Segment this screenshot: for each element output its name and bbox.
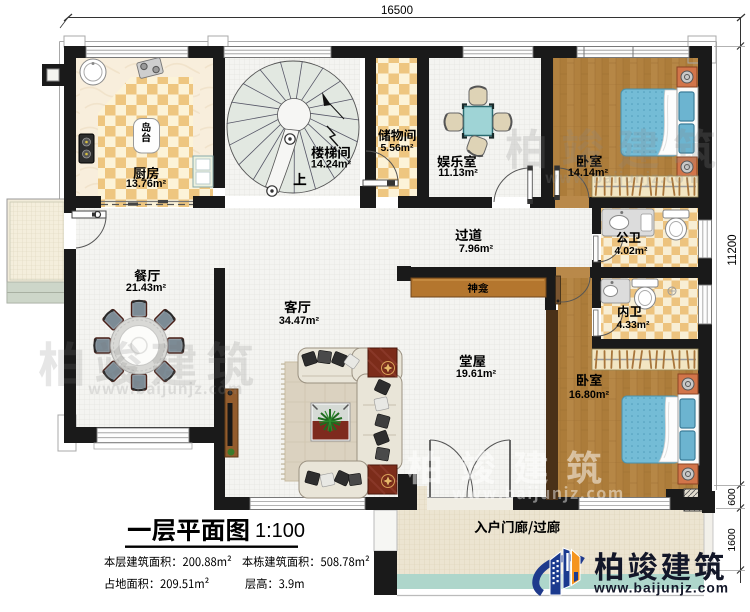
svg-text:5.56m²: 5.56m² [381,143,414,154]
svg-text:1600: 1600 [726,528,738,552]
svg-text:34.47m²: 34.47m² [279,315,320,327]
svg-text:4.33m²: 4.33m² [617,320,650,331]
svg-text:16500: 16500 [381,5,413,17]
svg-text:www.baijunjz.com: www.baijunjz.com [593,581,729,596]
svg-text:13.76m²: 13.76m² [126,178,167,190]
svg-text:21.43m²: 21.43m² [126,282,167,294]
svg-text:14.24m²: 14.24m² [311,159,352,171]
svg-text:11.13m²: 11.13m² [438,167,478,179]
svg-text:4.02m²: 4.02m² [615,246,648,257]
svg-text:16.80m²: 16.80m² [569,389,610,401]
svg-text:19.61m²: 19.61m² [456,368,497,380]
svg-text:1:100: 1:100 [255,520,305,542]
svg-text:7.96m²: 7.96m² [459,243,494,255]
svg-text:600: 600 [726,488,738,506]
svg-text:11200: 11200 [727,234,739,265]
